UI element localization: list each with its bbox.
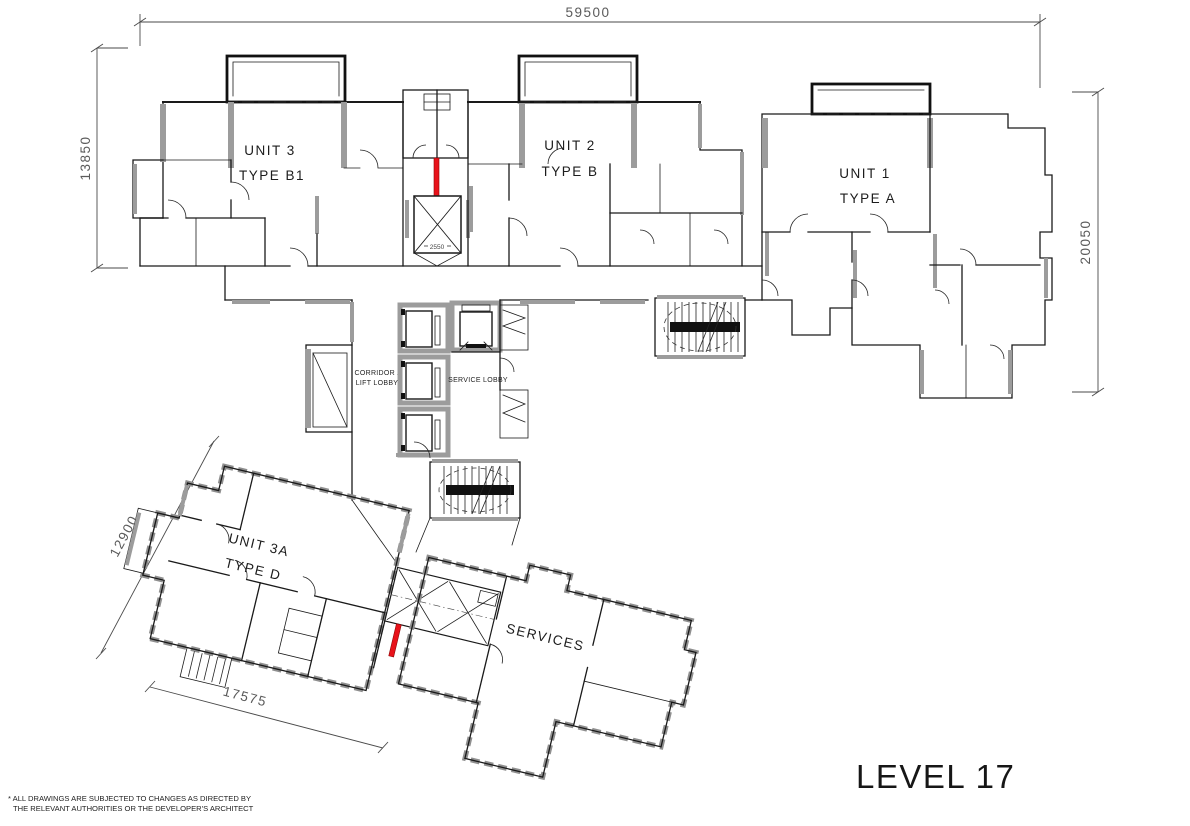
unit-1-type-label: TYPE A [840, 191, 896, 206]
unit-2-plan: UNIT 2 TYPE B [468, 56, 742, 266]
floor-plan-page: 59500 13850 20050 12900 17575 [0, 0, 1190, 826]
unit-2-name-label: UNIT 2 [544, 138, 596, 153]
dimension-lower-left: 12900 [96, 436, 219, 659]
unit-3a-plan: UNIT 3A TYPE D [102, 449, 409, 720]
service-lobby-label: SERVICE LOBBY [448, 377, 508, 384]
dimension-right: 20050 [1072, 88, 1104, 396]
disclaimer-note: * ALL DRAWINGS ARE SUBJECTED TO CHANGES … [8, 794, 254, 813]
unit-3-plan: UNIT 3 TYPE B1 [133, 56, 403, 266]
bottom-wing: UNIT 3A TYPE D SERVICES [99, 449, 712, 805]
service-lift [452, 303, 500, 350]
red-wall-marker-1 [434, 158, 439, 196]
central-lift-shaft: 2550 [403, 90, 468, 266]
disclaimer-line1: * ALL DRAWINGS ARE SUBJECTED TO CHANGES … [8, 794, 251, 803]
unit-3-name-label: UNIT 3 [244, 143, 296, 158]
corridor-label-line1: CORRIDOR / [355, 370, 400, 377]
lower-lift-shaft [374, 567, 501, 692]
dimension-left: 13850 [78, 44, 128, 272]
red-wall-marker-2 [389, 624, 402, 657]
unit-3a-name-label: UNIT 3A [227, 530, 291, 559]
services-plan: SERVICES [385, 542, 707, 805]
lift-bank [400, 305, 448, 455]
floor-plan-drawing: 59500 13850 20050 12900 17575 [0, 0, 1190, 826]
services-label: SERVICES [505, 621, 586, 654]
lift-well-dimension-label: 2550 [430, 244, 445, 251]
unit-3a-type-label: TYPE D [223, 555, 283, 583]
unit-1-name-label: UNIT 1 [839, 166, 891, 181]
unit-3-type-label: TYPE B1 [239, 168, 305, 183]
dimension-lower-bottom: 17575 [145, 681, 388, 753]
dimension-top: 59500 [134, 5, 1046, 88]
left-dimension-label: 13850 [78, 135, 93, 180]
disclaimer-line2: THE RELEVANT AUTHORITIES OR THE DEVELOPE… [13, 804, 254, 813]
stair-1 [655, 297, 745, 357]
right-dimension-label: 20050 [1078, 219, 1093, 264]
lower-width-dimension-label: 17575 [221, 684, 268, 710]
unit-1-plan: UNIT 1 TYPE A [762, 84, 1052, 398]
stair-2 [414, 442, 520, 552]
corridor-label-line2: LIFT LOBBY [356, 380, 399, 387]
lift-lobby-plan: CORRIDOR / LIFT LOBBY [306, 300, 528, 565]
corridor [140, 248, 762, 302]
top-dimension-label: 59500 [565, 5, 610, 20]
unit-2-type-label: TYPE B [541, 164, 598, 179]
level-title: LEVEL 17 [856, 758, 1015, 795]
